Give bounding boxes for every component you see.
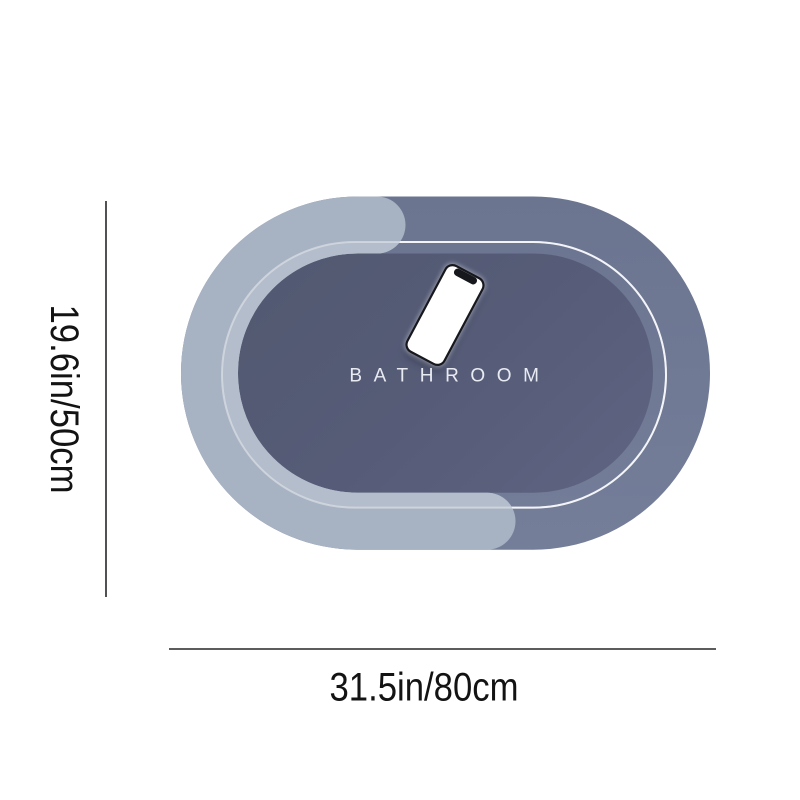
svg-text:BATHROOM: BATHROOM [349,366,550,387]
svg-text:31.5in/80cm: 31.5in/80cm [330,666,519,710]
svg-text:19.6in/50cm: 19.6in/50cm [42,305,86,494]
